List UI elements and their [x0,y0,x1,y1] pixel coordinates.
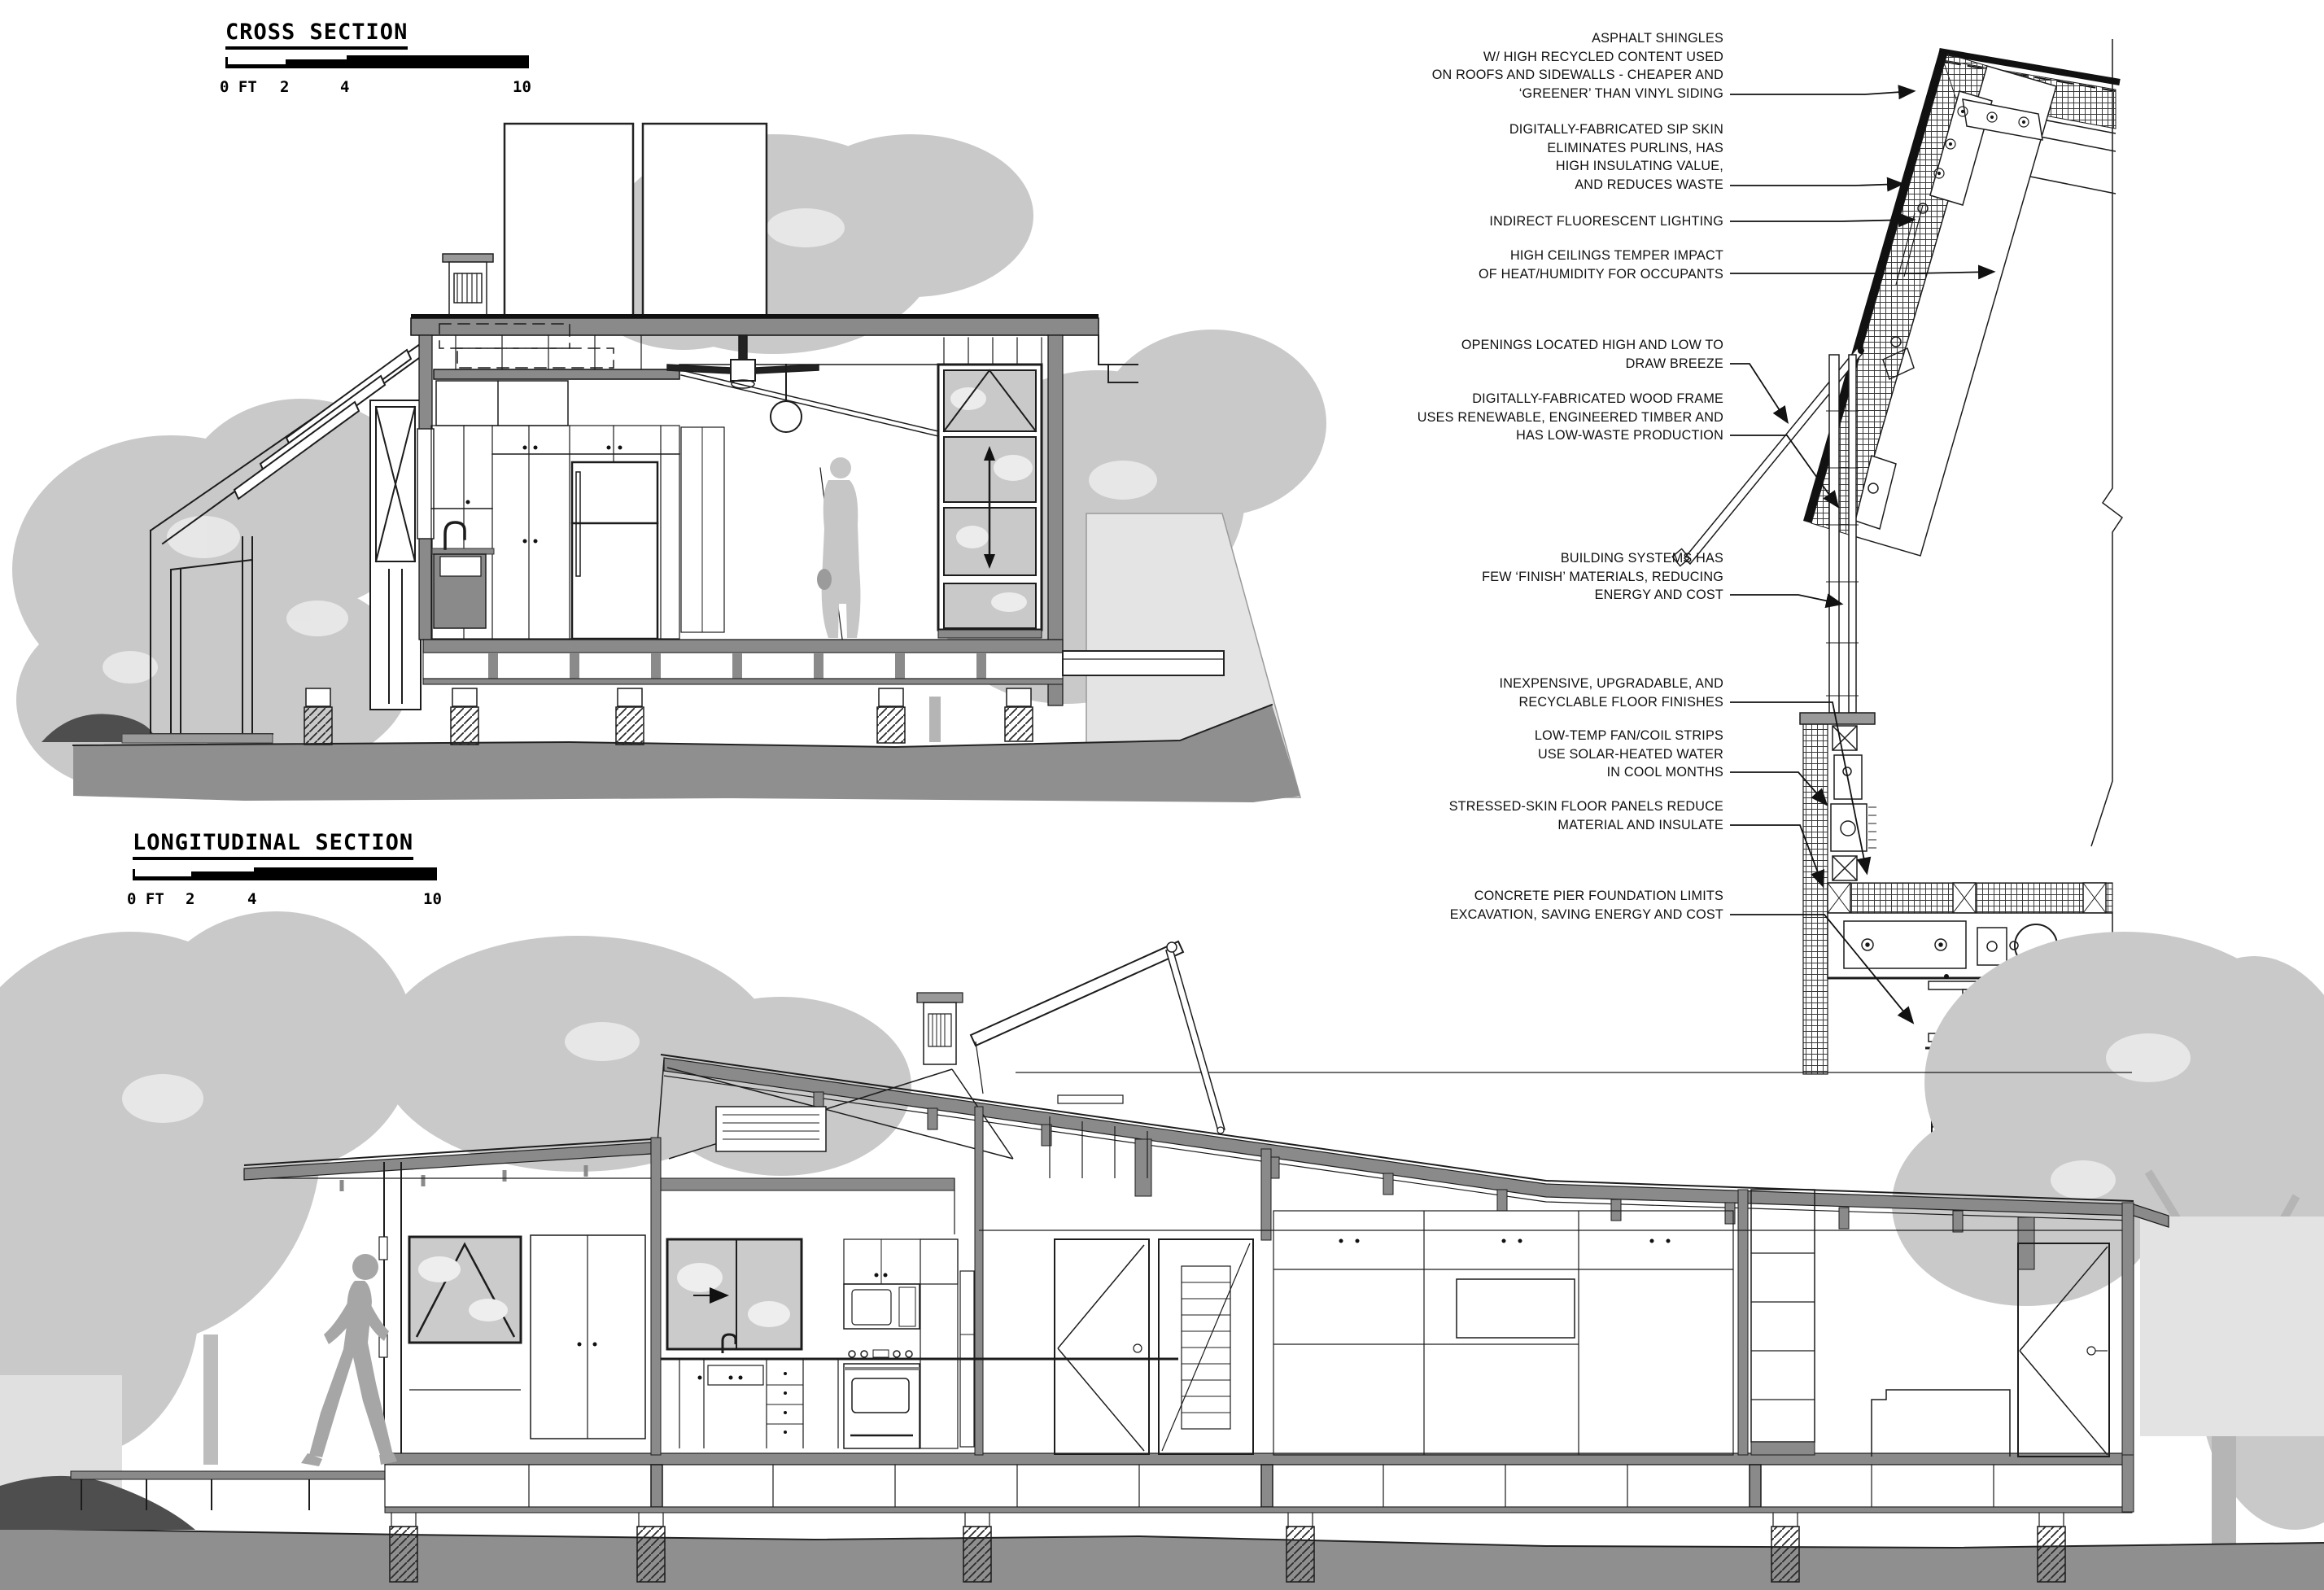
annotation-high-ceilings: HIGH CEILINGS TEMPER IMPACTOF HEAT/HUMID… [1300,247,1723,283]
floor-platform [71,1453,2132,1513]
person-standing [817,457,860,638]
cross-section-title: CROSS SECTION [225,20,408,50]
long-scale-2: 2 [186,890,194,908]
cross-scale-0: 0 FT [220,78,257,96]
annotation-floor-finishes: INEXPENSIVE, UPGRADABLE, ANDRECYCLABLE F… [1300,675,1723,711]
drawing-sheet: CROSS SECTION 0 FT 2 4 10 LONGITUDINAL S… [0,0,2324,1590]
longitudinal-scale-bar [133,864,437,882]
long-left-wall [379,1162,401,1453]
break-line [2091,39,2122,846]
annotation-wood-frame: DIGITALLY-FABRICATED WOOD FRAMEUSES RENE… [1300,390,1723,445]
window-stack [938,365,1042,638]
annotation-sip-skin: DIGITALLY-FABRICATED SIP SKINELIMINATES … [1300,120,1723,194]
annotation-lighting: INDIRECT FLUORESCENT LIGHTING [1300,212,1723,231]
annotation-fan-coil: LOW-TEMP FAN/COIL STRIPSUSE SOLAR-HEATED… [1300,727,1723,782]
section-artwork [0,0,2324,1590]
cross-section-drawing [12,124,1326,802]
cross-scale-10: 10 [513,78,531,96]
long-scale-4: 4 [247,890,256,908]
cross-section-scale-bar [225,52,529,70]
long-scale-10: 10 [423,890,442,908]
annotation-floor-panels: STRESSED-SKIN FLOOR PANELS REDUCEMATERIA… [1300,797,1723,834]
annotation-concrete-pier: CONCRETE PIER FOUNDATION LIMITSEXCAVATIO… [1300,887,1723,924]
annotation-openings: OPENINGS LOCATED HIGH AND LOW TODRAW BRE… [1300,336,1723,373]
annotation-asphalt-shingles: ASPHALT SHINGLESW/ HIGH RECYCLED CONTENT… [1300,29,1723,103]
cross-scale-2: 2 [280,78,289,96]
detail-roof-steep [1803,51,2056,556]
annotation-building-systems: BUILDING SYSTEMS HASFEW ‘FINISH’ MATERIA… [1300,549,1723,605]
person-walking [301,1254,397,1466]
longitudinal-drawing [0,911,2324,1590]
cross-scale-4: 4 [340,78,349,96]
long-left-room [409,1235,645,1439]
longitudinal-section-title: LONGITUDINAL SECTION [133,830,413,860]
long-scale-0: 0 FT [127,890,164,908]
